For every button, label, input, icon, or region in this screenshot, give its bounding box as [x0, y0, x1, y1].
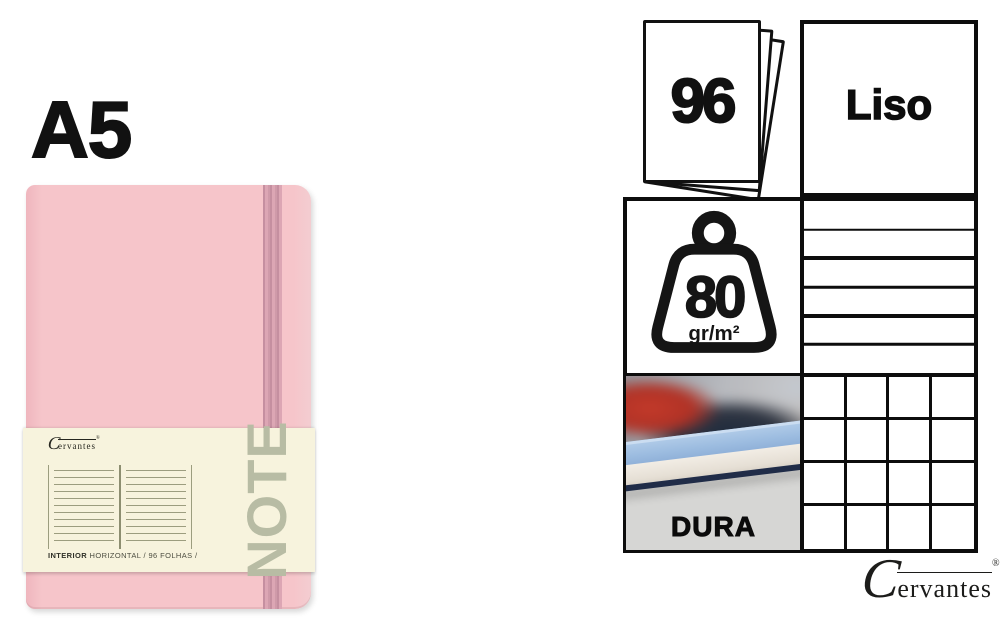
grid-square: [889, 506, 932, 549]
paper-type-label: Liso: [846, 81, 932, 129]
grid-square: [804, 463, 847, 506]
notebook-image: Cervantes® INTERIOR HORIZONTAL / 96 FOLH…: [26, 185, 311, 609]
grid-square: [804, 420, 847, 463]
grid-square: [932, 420, 975, 463]
brand-initial: C: [47, 436, 61, 450]
paper-weight-cell: 80 gr/m²: [623, 197, 804, 377]
grid-square: [932, 506, 975, 549]
lined-page-left: [54, 470, 114, 545]
interior-spec-text: INTERIOR HORIZONTAL / 96 FOLHAS /: [48, 551, 197, 560]
registered-mark: ®: [96, 436, 100, 441]
sheet-front-icon: 96: [643, 20, 761, 183]
lined-page-right: [126, 470, 186, 545]
product-infographic: A5 Cervantes® INTERIOR HORIZONTAL / 96 F…: [0, 0, 1000, 641]
grid-square: [804, 506, 847, 549]
brand-name: ervantes: [58, 439, 96, 451]
grid-square: [889, 377, 932, 420]
interior-spec-bold: INTERIOR: [48, 551, 87, 560]
interior-preview-illustration: [48, 465, 192, 549]
grid-pattern-icon: [800, 373, 978, 553]
sheet-count: 96: [671, 66, 734, 137]
grid-square: [847, 420, 890, 463]
weight-value: 80: [684, 265, 744, 330]
grid-square: [889, 463, 932, 506]
grid-square: [932, 377, 975, 420]
brand-logo: Cervantes®: [862, 558, 1000, 604]
ruling-line: [804, 228, 974, 231]
paper-type-cell: Liso: [800, 20, 978, 197]
book-spine-line: [119, 465, 121, 549]
grid-square: [847, 377, 890, 420]
ruling-line: [804, 256, 974, 260]
grid-square: [847, 463, 890, 506]
registered-mark: ®: [992, 558, 1000, 569]
brand-logo-small: Cervantes®: [48, 436, 100, 451]
note-watermark: NOTE: [237, 420, 297, 580]
ruling-line: [804, 343, 974, 346]
brand-initial: C: [860, 558, 902, 602]
grid-square: [932, 463, 975, 506]
hardcover-photo-cell: DURA: [623, 373, 804, 553]
lined-pattern-icon: [800, 197, 978, 377]
weight-icon: 80 gr/m²: [638, 206, 790, 368]
belly-band: Cervantes® INTERIOR HORIZONTAL / 96 FOLH…: [23, 428, 315, 572]
ruling-line: [804, 286, 974, 289]
size-label: A5: [31, 90, 131, 170]
interior-spec-rest: HORIZONTAL / 96 FOLHAS /: [90, 551, 198, 560]
sheets-icon: 96: [643, 20, 798, 198]
ruling-line: [804, 314, 974, 318]
grid-square: [889, 420, 932, 463]
grid-square: [847, 506, 890, 549]
note-watermark-text: NOTE: [235, 420, 298, 580]
grid-square: [804, 377, 847, 420]
weight-unit: gr/m²: [688, 322, 739, 345]
brand-name: ervantes: [897, 572, 992, 604]
cover-type-label: DURA: [626, 511, 801, 543]
